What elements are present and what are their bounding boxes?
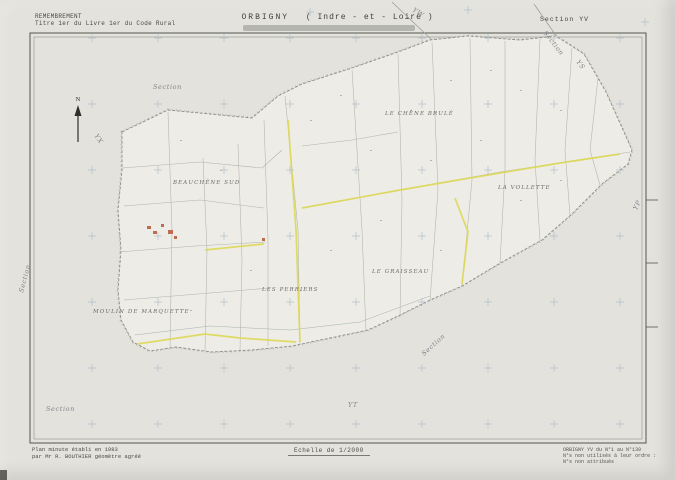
registration-cross: [88, 298, 96, 306]
registration-cross: [550, 232, 558, 240]
cadastral-map-sheet: REMEMBREMENT Titre 1er du Livre 1er du C…: [0, 0, 675, 480]
registration-cross: [550, 298, 558, 306]
registration-cross: [286, 364, 294, 372]
registration-cross: [616, 420, 624, 428]
registration-cross: [352, 364, 360, 372]
registration-cross: [484, 364, 492, 372]
registration-cross: [154, 100, 162, 108]
section-word-mid: Section: [420, 332, 447, 357]
registration-cross: [220, 364, 228, 372]
registration-cross: [220, 420, 228, 428]
section-code-yx: YX: [92, 132, 104, 145]
registration-cross: [154, 420, 162, 428]
registration-cross: [616, 100, 624, 108]
registration-cross: [88, 100, 96, 108]
registration-cross: [550, 420, 558, 428]
scale-label: Echelle de 1/2000: [288, 447, 370, 456]
registration-cross: [616, 298, 624, 306]
registration-cross: [418, 364, 426, 372]
numbering-unassigned-line: N°s non attribués: [563, 460, 656, 466]
registration-cross: [88, 34, 96, 42]
north-arrow-label: N: [76, 97, 81, 103]
registration-cross: [616, 364, 624, 372]
section-word-bottom-left: Section: [46, 405, 75, 413]
registration-cross: [352, 34, 360, 42]
registration-cross: [484, 420, 492, 428]
registration-cross: [306, 8, 314, 16]
registration-cross: [418, 420, 426, 428]
registration-cross: [464, 6, 472, 14]
place-le-graisseau: LE GRAISSEAU: [371, 269, 429, 275]
registration-cross: [286, 420, 294, 428]
map-canvas: N Section YX YW Section YS YP Section YT…: [0, 0, 675, 480]
north-arrow: N: [75, 97, 82, 142]
registration-cross: [616, 34, 624, 42]
registration-cross: [484, 298, 492, 306]
registration-cross: [220, 100, 228, 108]
place-la-vollette: LA VOLLETTE: [497, 185, 551, 191]
section-code-yw: YW: [411, 6, 426, 20]
place-le-chene-brule: LE CHÊNE BRULÉ: [384, 109, 454, 117]
registration-cross: [418, 34, 426, 42]
registration-cross: [154, 34, 162, 42]
registration-cross: [286, 34, 294, 42]
margin-ticks: [646, 200, 658, 327]
footer-plan-block: Plan minute établi en 1983 par Mr R. BOU…: [32, 447, 141, 460]
section-word-top-left: Section: [153, 83, 182, 91]
geometre-line: par Mr R. BOUTHIER géomètre agréé: [32, 454, 141, 461]
registration-cross: [154, 364, 162, 372]
scan-corner-mark: [0, 470, 7, 480]
registration-cross: [88, 166, 96, 174]
registration-cross: [88, 232, 96, 240]
registration-cross: [352, 420, 360, 428]
registration-cross: [641, 18, 649, 26]
section-code-yt: YT: [348, 401, 358, 409]
registration-cross: [88, 364, 96, 372]
registration-cross: [616, 232, 624, 240]
registration-cross: [88, 420, 96, 428]
place-moulin-de-marquette: MOULIN DE MARQUETTE: [92, 309, 190, 315]
registration-cross: [220, 34, 228, 42]
footer-numbering-block: ORBIGNY YV du N°1 au N°139 N°s non utili…: [563, 448, 656, 465]
place-beauchene-sud: BEAUCHÊNE SUD: [172, 178, 240, 186]
place-les-perriers: LES PERRIERS: [261, 287, 318, 293]
section-code-yp: YP: [631, 199, 642, 211]
registration-cross: [550, 364, 558, 372]
